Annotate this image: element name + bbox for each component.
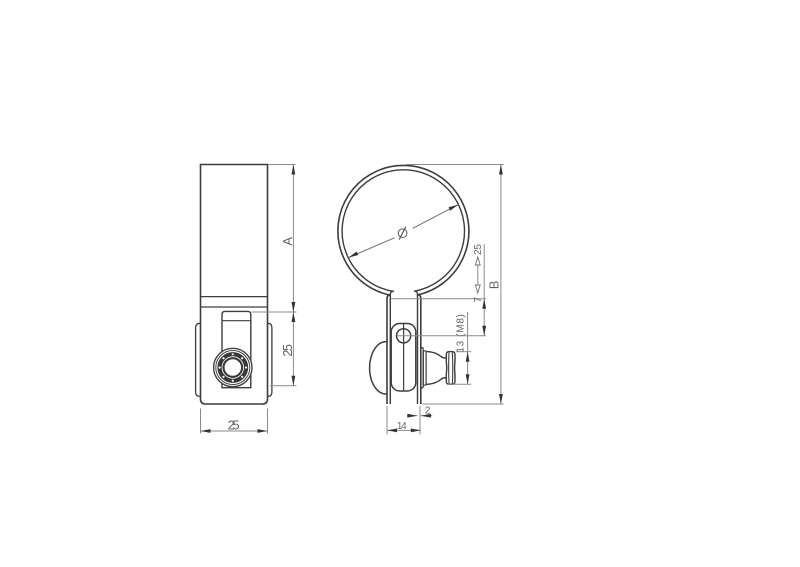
svg-text:7: 7 (473, 297, 484, 303)
svg-text:B: B (487, 281, 502, 290)
svg-text:25: 25 (281, 344, 295, 357)
svg-text:2: 2 (425, 406, 431, 417)
svg-text:A: A (280, 237, 295, 246)
svg-text:14: 14 (397, 421, 407, 432)
svg-text:25: 25 (473, 244, 484, 255)
svg-text:13 (M8): 13 (M8) (455, 314, 466, 353)
svg-text:25: 25 (228, 419, 240, 433)
